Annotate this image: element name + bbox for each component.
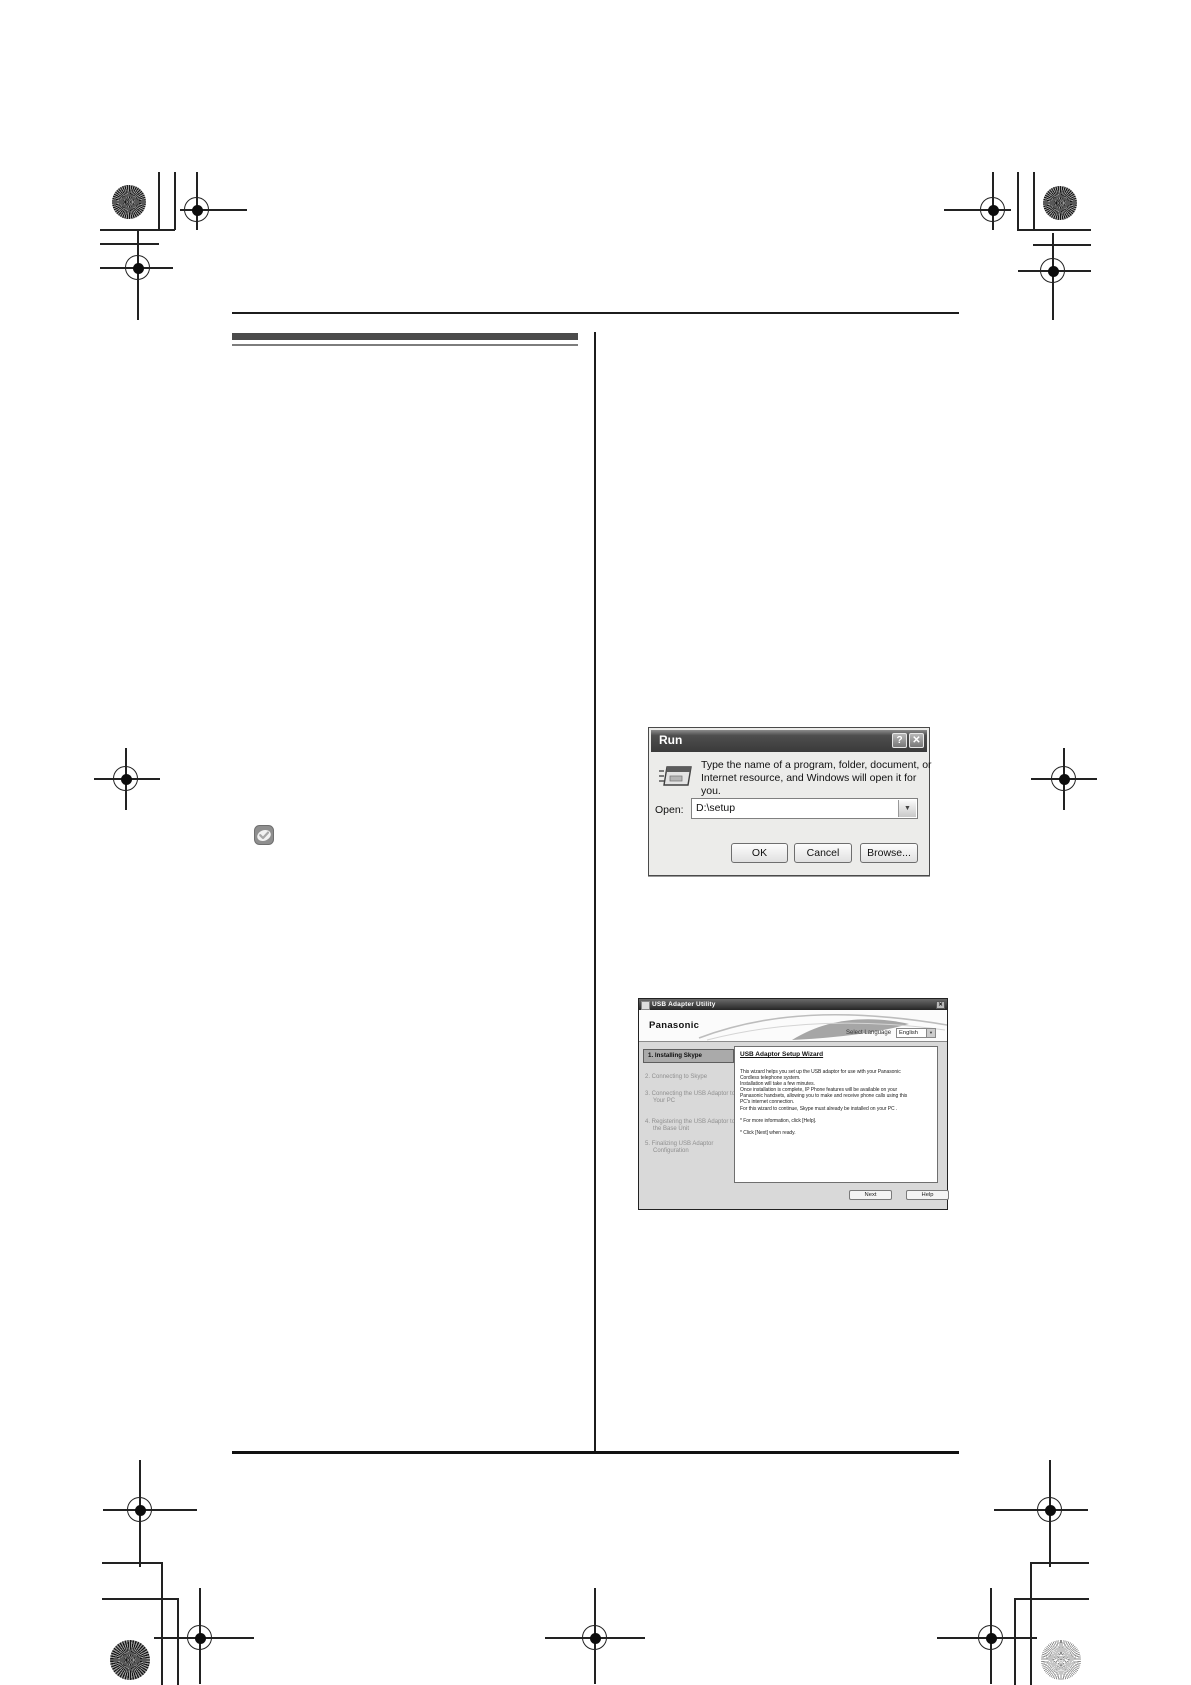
trim-line	[177, 1598, 179, 1685]
trim-line	[161, 1562, 163, 1685]
run-title-bar[interactable]: Run ? ✕	[651, 730, 927, 752]
trim-line	[158, 172, 160, 230]
wizard-body-text: This wizard helps you set up the USB ada…	[740, 1069, 934, 1136]
wizard-step-5: 5. Finalizing USB Adaptor Configuration	[645, 1141, 741, 1155]
next-button[interactable]: Next	[849, 1190, 892, 1200]
trim-line	[1030, 1562, 1032, 1685]
chevron-down-icon[interactable]: ▼	[926, 1029, 935, 1037]
usb-adapter-utility-window: USB Adapter Utility ✕ Panasonic Select L…	[638, 998, 948, 1210]
registration-starburst-bottom-left	[110, 1640, 150, 1680]
select-language-label: Select Language	[846, 1030, 891, 1036]
trim-line	[1017, 172, 1019, 230]
column-divider	[594, 332, 596, 1452]
language-select[interactable]: English ▼	[896, 1028, 936, 1038]
top-rule	[232, 312, 959, 314]
help-button[interactable]: Help	[906, 1190, 949, 1200]
trim-line	[1030, 1562, 1089, 1564]
browse-button[interactable]: Browse...	[860, 843, 918, 863]
bottom-rule	[232, 1451, 959, 1454]
run-dialog: Run ? ✕ Type the name of a program, fold…	[648, 727, 930, 876]
run-prompt-text: Type the name of a program, folder, docu…	[701, 759, 935, 798]
help-caption-button[interactable]: ?	[892, 733, 907, 748]
wizard-content-panel: USB Adaptor Setup Wizard This wizard hel…	[734, 1046, 938, 1183]
section-header-underline	[232, 344, 578, 346]
trim-line	[100, 243, 159, 245]
wizard-step-4: 4. Registering the USB Adaptor to the Ba…	[645, 1119, 741, 1133]
open-combobox-value[interactable]: D:\setup	[696, 802, 735, 814]
chevron-down-icon[interactable]: ▼	[898, 800, 916, 817]
panasonic-logo: Panasonic	[649, 1020, 699, 1031]
close-icon[interactable]: ✕	[909, 733, 924, 748]
trim-line	[1017, 229, 1091, 231]
wizard-step-2: 2. Connecting to Skype	[645, 1074, 741, 1081]
registration-starburst-bottom-right	[1041, 1640, 1081, 1680]
registration-starburst-top-right	[1043, 186, 1077, 220]
run-program-icon	[657, 761, 695, 796]
manual-page: Run ? ✕ Type the name of a program, fold…	[0, 0, 1191, 1685]
registration-starburst-top-left	[112, 185, 146, 219]
trim-line	[1014, 1598, 1089, 1600]
language-value[interactable]: English	[899, 1030, 918, 1036]
trim-line	[174, 172, 176, 230]
trim-line	[1033, 244, 1091, 246]
trim-line	[102, 1598, 177, 1600]
run-title: Run	[659, 733, 682, 747]
usb-header: Panasonic Select Language English ▼	[639, 1010, 947, 1042]
trim-line	[102, 1562, 161, 1564]
cancel-button[interactable]: Cancel	[794, 843, 852, 863]
usb-window-title: USB Adapter Utility	[652, 1001, 716, 1008]
open-combobox[interactable]: D:\setup ▼	[691, 798, 918, 819]
usb-title-bar[interactable]: USB Adapter Utility ✕	[639, 999, 947, 1010]
wizard-heading: USB Adaptor Setup Wizard	[740, 1051, 823, 1058]
wizard-step-1-active[interactable]: 1. Installing Skype	[643, 1049, 734, 1063]
application-icon	[641, 1001, 650, 1010]
ok-button[interactable]: OK	[731, 843, 788, 863]
trim-line	[1033, 172, 1035, 230]
section-header-bar	[232, 333, 578, 340]
trim-line	[1014, 1598, 1016, 1685]
open-label: Open:	[655, 804, 684, 816]
wizard-step-3: 3. Connecting the USB Adaptor to Your PC	[645, 1091, 741, 1105]
close-icon[interactable]: ✕	[936, 1001, 945, 1009]
skype-check-icon	[254, 825, 274, 845]
